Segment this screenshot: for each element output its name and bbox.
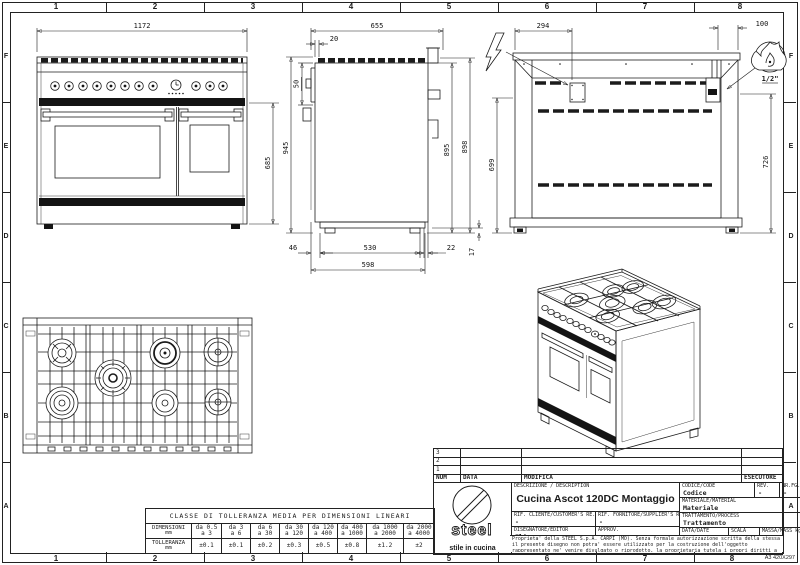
supplier-ref-cell: RIF. FORNITORE/SUPPLIER'S RE.- xyxy=(596,512,679,526)
dim-rear-gas-height: 726 xyxy=(762,156,770,169)
code-cell: CODICE/CODECodice xyxy=(680,483,755,497)
dim-side-grate-height: 898 xyxy=(461,141,469,154)
process-cell: TRATTAMENTO/PROCESSTrattamento xyxy=(680,513,800,527)
drawing-title: Cucina Ascot 120DC Montaggio xyxy=(512,493,679,505)
knob-profile xyxy=(306,79,311,88)
company-logo: steel stile in cucina xyxy=(434,483,512,554)
iso-right-window xyxy=(591,370,610,404)
isometric-view xyxy=(538,269,700,457)
front-left-foot xyxy=(44,224,53,229)
control-knobs xyxy=(51,82,228,91)
oven-doors xyxy=(39,107,245,196)
front-rail-marks xyxy=(48,447,231,451)
logo-tagline: stile in cucina xyxy=(434,545,511,552)
title-block: 3 2 1 NUM DATA MODIFICA ESECUTORE steel … xyxy=(433,448,783,552)
legal-notice: Proprieta' della STEEL S.p.A. CARPI (MO)… xyxy=(510,535,783,552)
gas-connection xyxy=(706,60,720,102)
rev-executor-header: ESECUTORE xyxy=(742,475,782,483)
rev-date-header: DATA xyxy=(461,475,522,483)
plan-view xyxy=(23,318,252,453)
dim-side-base-depth: 598 xyxy=(362,261,375,269)
dim-front-door-height: 685 xyxy=(264,157,272,170)
front-bottom-black-band xyxy=(39,198,245,206)
dim-side-panel-height: 50 xyxy=(293,80,301,88)
title-block-main: steel stile in cucina DESCRIZIONE / DESC… xyxy=(433,482,783,555)
rear-view: 294 100 1/2" xyxy=(486,20,786,233)
lightning-icon xyxy=(486,33,504,71)
flame-icon xyxy=(751,42,786,72)
left-oven-window xyxy=(55,126,160,178)
material-cell: MATERIALE/MATERIALMateriale xyxy=(680,498,800,512)
dim-side-foot-height: 17 xyxy=(468,248,476,256)
side-view: 655 20 50 945 xyxy=(282,22,483,274)
dim-side-grate-inset: 20 xyxy=(330,35,338,43)
rev-num-header: NUM xyxy=(434,475,461,483)
iso-bottom-black-band xyxy=(538,398,616,445)
description-cell: DESCRIZIONE / DESCRIPTION Cucina Ascot 1… xyxy=(512,483,679,512)
gas-fitting-profile xyxy=(428,90,440,99)
dim-side-total-height: 945 xyxy=(282,142,290,155)
dim-side-foot-span: 530 xyxy=(364,244,377,252)
dim-side-body-height: 895 xyxy=(443,144,451,157)
front-view: 1172 xyxy=(37,22,279,229)
gas-size-label: 1/2" xyxy=(762,75,779,83)
dim-side-front-offset: 46 xyxy=(289,244,297,252)
dim-rear-gas-offset: 100 xyxy=(756,20,769,28)
tolerance-values-row: TOLLERANZA mm ±0.1 ±0.1 ±0.2 ±0.3 ±0.5 ±… xyxy=(146,539,434,553)
front-right-foot xyxy=(231,224,240,229)
dim-side-rear-offset: 22 xyxy=(447,244,455,252)
tolerance-table: CLASSE DI TOLLERANZA MEDIA PER DIMENSION… xyxy=(145,508,435,554)
rev-change-header: MODIFICA xyxy=(522,475,742,483)
tolerance-dimensions-row: DIMENSIONI mm da 0.5a 3 da 3a 6 da 6a 30… xyxy=(146,524,434,539)
clock-icon xyxy=(168,80,184,94)
dim-side-depth: 655 xyxy=(371,22,384,30)
sheet-no-cell: NR.FG.- xyxy=(780,483,800,497)
tolerance-table-title: CLASSE DI TOLLERANZA MEDIA PER DIMENSION… xyxy=(146,509,434,524)
front-top-black-band xyxy=(39,98,245,106)
drawing-sheet: 1 2 3 4 5 6 7 8 1 2 3 4 5 6 7 8 A3 420X2… xyxy=(0,0,800,565)
handle-profile xyxy=(303,108,311,121)
logo-wordmark: steel xyxy=(451,522,492,539)
dim-front-width: 1172 xyxy=(134,22,151,30)
dim-rear-elec-offset: 294 xyxy=(537,22,550,30)
rev-cell: REV.- xyxy=(755,483,780,497)
revision-table: 3 2 1 NUM DATA MODIFICA ESECUTORE xyxy=(433,448,783,482)
customer-ref-cell: RIF. CLIENTE/CUSTOMER'S RE.- xyxy=(512,512,596,526)
dim-rear-elec-height: 699 xyxy=(488,159,496,172)
right-oven-window xyxy=(190,125,229,172)
